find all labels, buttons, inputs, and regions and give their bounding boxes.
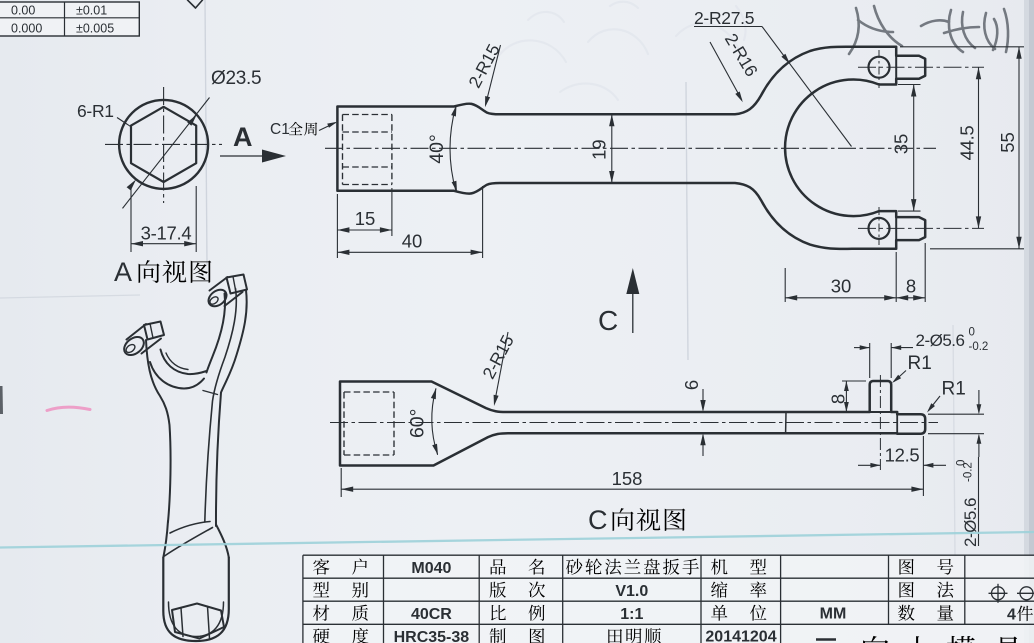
svg-text:±0.005: ±0.005 [76,22,114,36]
svg-text:C: C [588,505,608,535]
svg-text:12.5: 12.5 [885,445,920,466]
svg-text:-0.2: -0.2 [969,341,989,353]
svg-text:A: A [114,257,132,287]
svg-text:19: 19 [588,139,609,160]
svg-text:158: 158 [612,468,643,489]
svg-text:30: 30 [831,276,852,297]
svg-text:Ø23.5: Ø23.5 [211,68,261,89]
svg-text:2-Ø5.6: 2-Ø5.6 [961,498,980,547]
svg-text:8: 8 [906,276,916,297]
svg-text:40CR: 40CR [411,606,452,623]
svg-text:-0.2: -0.2 [963,462,975,482]
svg-text:6-R1: 6-R1 [77,101,114,121]
svg-text:1:1: 1:1 [620,606,643,623]
svg-text:R1: R1 [942,379,966,400]
svg-text:0.000: 0.000 [11,22,42,36]
svg-text:15: 15 [355,208,376,229]
svg-text:20141204: 20141204 [705,629,776,643]
svg-text:0.00: 0.00 [11,4,35,18]
svg-text:MM: MM [820,606,847,623]
svg-text:C: C [598,305,618,336]
svg-text:40°: 40° [426,134,448,164]
svg-text:R1: R1 [908,353,932,374]
svg-text:35: 35 [891,134,912,155]
svg-text:40: 40 [402,231,423,252]
svg-text:V1.0: V1.0 [615,583,648,600]
svg-text:44.5: 44.5 [957,126,978,161]
svg-text:6: 6 [681,380,702,390]
svg-text:2-Ø5.6: 2-Ø5.6 [916,331,965,350]
svg-text:±0.01: ±0.01 [76,4,107,18]
svg-text:HRC35-38: HRC35-38 [394,629,470,643]
svg-text:M040: M040 [411,560,451,577]
svg-text:55: 55 [997,132,1018,153]
svg-text:2-R27.5: 2-R27.5 [694,8,754,28]
svg-text:60°: 60° [407,409,429,439]
svg-text:3-17.4: 3-17.4 [141,223,192,244]
svg-text:A: A [233,122,253,152]
svg-text:C1: C1 [270,121,290,138]
svg-text:4: 4 [1007,607,1016,624]
svg-text:8: 8 [828,394,849,404]
svg-text:0: 0 [969,327,975,339]
